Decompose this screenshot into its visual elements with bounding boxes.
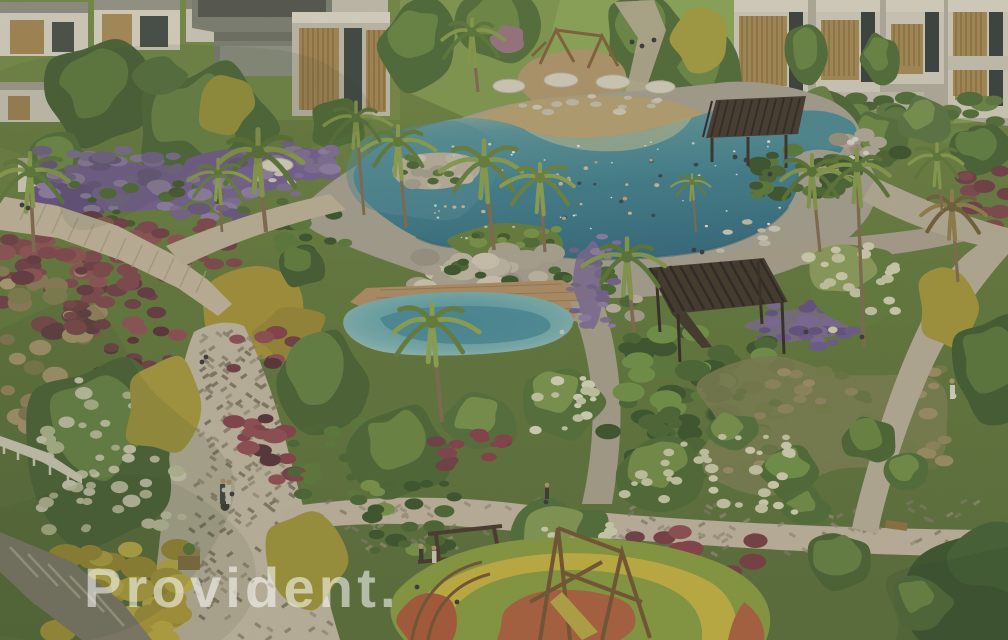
svg-text:Provident.: Provident. (84, 556, 400, 619)
